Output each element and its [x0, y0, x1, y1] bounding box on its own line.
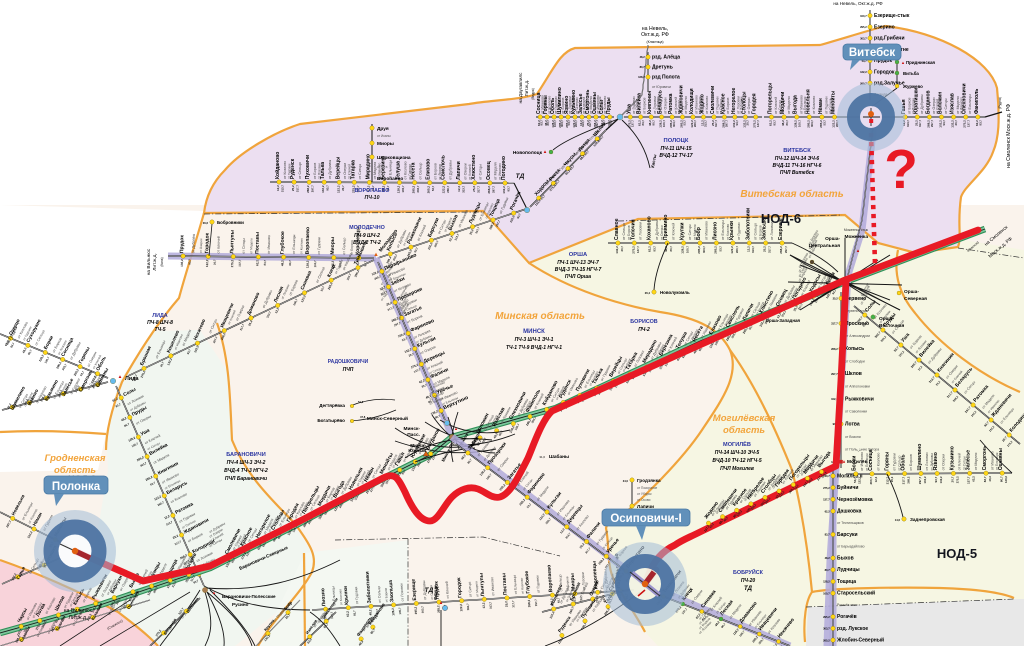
- svg-text:ПЧ-14 ШЧ-10 ЭЧ-5: ПЧ-14 ШЧ-10 ЭЧ-5: [715, 450, 760, 456]
- svg-text:268,2: 268,2: [527, 599, 532, 607]
- svg-text:от Озерки: от Озерки: [663, 97, 667, 114]
- svg-text:от Озерки: от Озерки: [464, 163, 468, 180]
- svg-text:Свислочь: Свислочь: [441, 155, 447, 180]
- svg-text:Могилёвская: Могилёвская: [713, 413, 776, 424]
- svg-text:область: область: [723, 425, 765, 436]
- svg-text:128,2: 128,2: [823, 580, 830, 584]
- svg-text:25,2: 25,2: [472, 186, 476, 192]
- svg-text:от Ключей: от Ключей: [958, 453, 962, 470]
- svg-text:ТЧ-1 ТЧ-9 ВЧД-1 НГЧ-1: ТЧ-1 ТЧ-9 ВЧД-1 НГЧ-1: [506, 345, 562, 351]
- svg-text:317,7: 317,7: [918, 120, 922, 127]
- svg-text:100,7: 100,7: [823, 591, 830, 595]
- svg-text:Новополоцк: Новополоцк: [513, 150, 543, 156]
- svg-text:Городок: Городок: [874, 69, 895, 75]
- svg-text:100,7: 100,7: [398, 607, 403, 615]
- svg-text:Новолукомль: Новолукомль: [660, 290, 690, 295]
- svg-text:от Александрии: от Александрии: [845, 334, 870, 338]
- svg-text:Талька: Талька: [320, 162, 326, 179]
- svg-text:80,7: 80,7: [640, 65, 646, 69]
- svg-text:62,2: 62,2: [255, 260, 259, 266]
- svg-text:265,2: 265,2: [427, 186, 431, 194]
- svg-text:12,2: 12,2: [481, 602, 485, 608]
- svg-text:295,2: 295,2: [697, 246, 701, 254]
- svg-text:Миоры: Миоры: [377, 141, 394, 147]
- svg-text:Дашковка: Дашковка: [837, 509, 862, 515]
- svg-text:Быхов: Быхов: [837, 556, 854, 562]
- svg-text:Тощица: Тощица: [837, 579, 856, 585]
- svg-text:26,4: 26,4: [645, 291, 651, 295]
- svg-text:МОГИЛЁВ: МОГИЛЁВ: [723, 441, 751, 448]
- svg-text:от Козлово: от Козлово: [403, 161, 407, 179]
- svg-text:303,7: 303,7: [560, 120, 564, 127]
- svg-text:137,7: 137,7: [756, 120, 760, 127]
- svg-text:НОД-5: НОД-5: [937, 546, 977, 561]
- svg-text:ПЧ-9 ШЧ-2: ПЧ-9 ШЧ-2: [354, 233, 380, 239]
- svg-text:Крынки: Крынки: [729, 221, 735, 240]
- svg-text:53,7: 53,7: [567, 120, 571, 126]
- svg-text:Шумилино: Шумилино: [917, 444, 923, 471]
- svg-text:20,7: 20,7: [954, 120, 958, 126]
- svg-text:303,7: 303,7: [860, 36, 867, 40]
- svg-text:128,2: 128,2: [681, 246, 685, 254]
- svg-text:102,2: 102,2: [321, 185, 325, 193]
- svg-text:83,7: 83,7: [983, 476, 987, 482]
- svg-text:от Ключей: от Ключей: [217, 236, 221, 253]
- svg-text:Погодино: Погодино: [501, 156, 507, 180]
- svg-text:Заднепровская: Заднепровская: [910, 517, 945, 522]
- svg-text:Минская область: Минская область: [495, 310, 585, 322]
- svg-text:83,7: 83,7: [653, 246, 657, 252]
- svg-text:от Гута: от Гута: [377, 165, 388, 169]
- svg-text:Прудок: Прудок: [179, 235, 185, 254]
- svg-text:Приднинская: Приднинская: [906, 60, 935, 65]
- svg-text:Верейцы: Верейцы: [334, 157, 341, 180]
- svg-text:Выгода: Выгода: [793, 95, 799, 114]
- svg-text:93,7: 93,7: [942, 120, 946, 126]
- svg-text:Лит.ж.д.: Лит.ж.д.: [69, 615, 88, 621]
- svg-text:Приямино: Приямино: [663, 215, 669, 241]
- svg-text:295,2: 295,2: [860, 25, 867, 29]
- svg-text:25,2: 25,2: [763, 246, 767, 252]
- svg-text:Центральная: Центральная: [809, 243, 841, 249]
- svg-text:ПЧ-1 ШЧ-13 ЭЧ-7: ПЧ-1 ШЧ-13 ЭЧ-7: [557, 260, 599, 266]
- svg-text:12,2: 12,2: [746, 246, 750, 252]
- svg-text:ТЧ-5: ТЧ-5: [154, 327, 165, 333]
- svg-text:Северная: Северная: [904, 296, 927, 302]
- svg-text:Богатырёво: Богатырёво: [317, 418, 345, 423]
- svg-text:297,7: 297,7: [930, 120, 934, 127]
- svg-text:НОД-6: НОД-6: [761, 211, 801, 226]
- svg-text:260,7: 260,7: [869, 477, 873, 485]
- svg-text:(Кяна): (Кяна): [160, 257, 164, 266]
- svg-text:ПЧП: ПЧП: [343, 367, 354, 373]
- svg-text:303,7: 303,7: [672, 120, 676, 127]
- svg-text:Изяслав: Изяслав: [950, 93, 956, 114]
- svg-text:265,2: 265,2: [823, 638, 830, 642]
- svg-text:Жлобин-Северный: Жлобин-Северный: [836, 637, 884, 644]
- svg-text:ПЧ-8 ШЧ-8: ПЧ-8 ШЧ-8: [147, 320, 173, 326]
- svg-text:МИНСК: МИНСК: [523, 329, 545, 335]
- svg-text:12,2: 12,2: [874, 476, 878, 482]
- svg-text:Борки: Борки: [852, 456, 858, 471]
- svg-text:от Ключей: от Ключей: [672, 223, 676, 240]
- svg-text:80,7: 80,7: [288, 260, 292, 266]
- svg-text:268,2: 268,2: [779, 246, 783, 254]
- svg-text:Слуцк: Слуцк: [433, 585, 439, 600]
- svg-text:Пуховичи: Пуховичи: [305, 155, 311, 179]
- svg-text:100,7: 100,7: [662, 120, 666, 127]
- svg-text:Пруды: Пруды: [606, 97, 612, 114]
- svg-text:Шабаны: Шабаны: [549, 453, 569, 460]
- svg-text:20,7: 20,7: [745, 120, 749, 126]
- svg-text:от Гудовки: от Гудовки: [893, 453, 897, 471]
- svg-text:260,7: 260,7: [574, 120, 578, 127]
- svg-text:297,7: 297,7: [784, 246, 788, 253]
- svg-text:от Ельницы: от Ельницы: [292, 234, 296, 254]
- svg-text:ПЧ-4 ШЧ-3 ЭЧ-2: ПЧ-4 ШЧ-3 ЭЧ-2: [227, 460, 266, 466]
- svg-text:Поставы: Поставы: [255, 232, 261, 254]
- svg-text:Полонка: Полонка: [52, 481, 101, 493]
- svg-text:128,2: 128,2: [306, 260, 310, 268]
- svg-text:100,7: 100,7: [860, 14, 867, 18]
- svg-text:от Иваново: от Иваново: [267, 235, 271, 254]
- svg-text:от Юровичи: от Юровичи: [652, 85, 671, 89]
- svg-text:на Вильнюс: на Вильнюс: [146, 248, 152, 275]
- svg-text:от Визони: от Визони: [845, 435, 861, 439]
- svg-text:от Польشние Хутора: от Польشние Хутора: [845, 447, 879, 451]
- svg-text:83,7: 83,7: [978, 120, 982, 126]
- svg-text:80,7: 80,7: [785, 120, 789, 126]
- svg-text:137,7: 137,7: [630, 120, 634, 127]
- svg-text:ТД: ТД: [744, 586, 753, 592]
- svg-text:80,7: 80,7: [825, 568, 831, 572]
- svg-text:102,2: 102,2: [180, 259, 184, 267]
- svg-text:268,2: 268,2: [487, 186, 491, 194]
- svg-text:295,2: 295,2: [412, 185, 416, 193]
- svg-text:48,2: 48,2: [988, 476, 992, 482]
- svg-text:Южный: Южный: [408, 447, 426, 453]
- svg-text:от Лозовки: от Лозовки: [639, 222, 643, 240]
- svg-text:Фаниполь: Фаниполь: [974, 89, 980, 114]
- svg-text:93,7: 93,7: [735, 120, 739, 126]
- svg-text:от Лозовки: от Лозовки: [925, 453, 929, 471]
- svg-text:на Невель, Окт.ж.д. РФ: на Невель, Окт.ж.д. РФ: [833, 1, 883, 6]
- svg-text:317,7: 317,7: [831, 322, 838, 326]
- svg-text:Барановичи-Полесские: Барановичи-Полесские: [222, 594, 276, 599]
- svg-text:от Гудовки: от Гудовки: [737, 222, 741, 240]
- svg-text:ПЧЛ Могилев: ПЧЛ Могилев: [720, 466, 754, 472]
- svg-text:Новельня: Новельня: [805, 89, 811, 114]
- svg-text:137,7: 137,7: [967, 476, 971, 484]
- svg-text:297,7: 297,7: [534, 599, 539, 607]
- svg-text:Лудчицы: Лудчицы: [837, 567, 860, 573]
- svg-text:100,7: 100,7: [553, 120, 557, 127]
- svg-text:268,2: 268,2: [831, 347, 838, 351]
- svg-text:Можеенка: Можеенка: [844, 234, 868, 240]
- svg-text:Богданов: Богданов: [925, 90, 931, 114]
- svg-text:ТД: ТД: [516, 173, 525, 180]
- svg-text:36,6: 36,6: [203, 221, 209, 225]
- svg-text:от Гудовки: от Гудовки: [317, 237, 321, 255]
- svg-text:93,7: 93,7: [188, 259, 192, 265]
- svg-text:268,2: 268,2: [306, 185, 310, 193]
- svg-text:ПЧ-20: ПЧ-20: [741, 578, 756, 584]
- svg-text:от Иваново: от Иваново: [860, 452, 864, 471]
- svg-text:313,7: 313,7: [461, 185, 465, 192]
- svg-text:ПЧ-12 ШЧ-14 ЭЧ-6: ПЧ-12 ШЧ-14 ЭЧ-6: [775, 156, 820, 162]
- svg-text:Хлюстино: Хлюстино: [471, 155, 477, 180]
- svg-text:100,7: 100,7: [686, 246, 690, 253]
- svg-text:Погорельцы: Погорельцы: [768, 83, 774, 114]
- svg-text:от Тектильщиков: от Тектильщиков: [837, 521, 864, 525]
- svg-text:Воропаево: Воропаево: [377, 176, 403, 182]
- svg-text:Воложин: Воложин: [938, 92, 944, 114]
- svg-text:Руденск: Руденск: [290, 158, 296, 179]
- svg-text:100,7: 100,7: [401, 185, 405, 192]
- svg-text:53,7: 53,7: [431, 185, 435, 191]
- svg-text:Горяны: Горяны: [884, 452, 890, 471]
- svg-text:80,7: 80,7: [999, 476, 1003, 482]
- svg-text:Крупки: Крупки: [680, 223, 686, 240]
- svg-text:Сосница: Сосница: [868, 449, 874, 471]
- svg-text:297,7: 297,7: [831, 372, 838, 376]
- svg-text:47,8: 47,8: [360, 415, 366, 419]
- svg-text:Лапичи: Лапичи: [456, 161, 462, 179]
- svg-text:297,7: 297,7: [491, 185, 495, 192]
- svg-text:137,7: 137,7: [823, 498, 830, 502]
- svg-text:62,2: 62,2: [825, 509, 831, 513]
- svg-text:БОРИСОВ: БОРИСОВ: [630, 319, 657, 325]
- svg-text:ВЧД-12 ТЧ-17: ВЧД-12 ТЧ-17: [659, 153, 692, 159]
- svg-text:(Вндра): (Вндра): [531, 88, 535, 99]
- svg-text:303,7: 303,7: [810, 120, 814, 127]
- svg-text:93,7: 93,7: [934, 476, 938, 482]
- svg-text:?: ?: [884, 138, 918, 200]
- svg-text:ПЧЛ Витебск: ПЧЛ Витебск: [780, 169, 815, 176]
- svg-text:от Ельницы: от Ельницы: [721, 220, 725, 240]
- svg-text:83,7: 83,7: [772, 120, 776, 126]
- svg-text:313,7: 313,7: [704, 120, 708, 127]
- svg-text:122,2: 122,2: [860, 70, 867, 74]
- svg-text:137,7: 137,7: [636, 246, 640, 253]
- svg-text:132,2: 132,2: [939, 476, 943, 483]
- svg-text:от Ельницы: от Ельницы: [968, 94, 972, 114]
- svg-text:ПЧ-3 ШЧ-1 ЭЧ-1: ПЧ-3 ШЧ-1 ЭЧ-1: [515, 337, 554, 343]
- svg-text:20,7: 20,7: [950, 476, 954, 482]
- svg-text:20,7: 20,7: [620, 246, 624, 252]
- svg-text:от Борков: от Борков: [909, 454, 913, 471]
- svg-text:317,7: 317,7: [902, 476, 906, 484]
- svg-text:Гродненская: Гродненская: [45, 453, 106, 464]
- svg-text:Орша-: Орша-: [879, 316, 894, 322]
- svg-text:ПОЛОЦК: ПОЛОЦК: [664, 138, 689, 144]
- svg-text:от Борков: от Борков: [313, 163, 317, 180]
- svg-text:Езерино: Езерино: [874, 24, 895, 30]
- svg-text:Лынтупы: Лынтупы: [229, 230, 235, 254]
- svg-text:313,7: 313,7: [488, 601, 493, 609]
- svg-text:Рогачёв: Рогачёв: [837, 614, 857, 620]
- svg-text:Рогачёв стык: Рогачёв стык: [837, 603, 858, 607]
- svg-text:Шарковщизна: Шарковщизна: [377, 155, 411, 161]
- svg-text:от Сельцо: от Сельцо: [298, 162, 302, 179]
- svg-text:Залесье: Залесье: [966, 450, 972, 471]
- svg-text:от Барыздайлово: от Барыздайлово: [837, 545, 865, 549]
- svg-text:от Козлово: от Козлово: [876, 453, 880, 471]
- svg-text:132,2: 132,2: [336, 185, 340, 193]
- svg-text:303,7: 303,7: [420, 606, 425, 614]
- svg-text:ПЧЛ Барановичи: ПЧЛ Барановичи: [225, 476, 267, 482]
- svg-text:128,2: 128,2: [397, 185, 401, 193]
- svg-text:Русино: Русино: [232, 602, 249, 607]
- svg-text:(Клястица): (Клястица): [646, 40, 663, 44]
- svg-text:ПЧ-11 ШЧ-15: ПЧ-11 ШЧ-15: [660, 146, 691, 152]
- svg-text:Лиозно: Лиозно: [712, 222, 718, 240]
- svg-text:Витьба: Витьба: [903, 71, 919, 76]
- svg-text:от Мяделя: от Мяделя: [974, 453, 978, 471]
- svg-text:от Озерки: от Озерки: [343, 163, 347, 180]
- svg-text:Городея: Городея: [752, 93, 758, 114]
- svg-text:62,2: 62,2: [972, 476, 976, 482]
- svg-text:ВЧД-4 ТЧ-3 НГЧ-2: ВЧД-4 ТЧ-3 НГЧ-2: [224, 468, 268, 474]
- svg-text:12,2: 12,2: [276, 185, 280, 191]
- svg-text:(Рудня): (Рудня): [998, 97, 1002, 109]
- svg-text:от Дубравы: от Дубравы: [328, 159, 332, 179]
- svg-text:53,7: 53,7: [718, 246, 722, 252]
- svg-text:295,2: 295,2: [413, 606, 418, 614]
- svg-text:53,7: 53,7: [823, 120, 827, 126]
- svg-text:ОРША: ОРША: [569, 252, 588, 258]
- svg-text:100,7: 100,7: [798, 120, 802, 127]
- svg-text:от Козлово: от Козлово: [299, 238, 303, 254]
- svg-text:260,7: 260,7: [735, 246, 739, 253]
- svg-text:317,7: 317,7: [296, 185, 300, 192]
- svg-text:297,7: 297,7: [311, 185, 315, 192]
- svg-text:Друя: Друя: [377, 126, 389, 132]
- svg-text:Минск-Северный: Минск-Северный: [367, 415, 408, 422]
- svg-text:313,7: 313,7: [751, 246, 755, 253]
- svg-text:317,7: 317,7: [768, 246, 772, 253]
- svg-text:Орша-: Орша-: [904, 289, 919, 295]
- svg-text:Бобровники: Бобровники: [217, 220, 244, 225]
- svg-text:от Саволюнки: от Саволюнки: [845, 410, 867, 414]
- svg-text:25,2: 25,2: [291, 185, 295, 191]
- svg-text:от Озерки: от Озерки: [941, 454, 945, 471]
- svg-text:48,2: 48,2: [280, 260, 284, 266]
- svg-text:317,7: 317,7: [511, 600, 516, 608]
- svg-text:Бобр: Бобр: [695, 227, 702, 240]
- svg-text:от Мяделя: от Мяделя: [249, 238, 253, 254]
- svg-text:от Мяделя: от Мяделя: [494, 162, 498, 180]
- svg-text:268,2: 268,2: [907, 476, 911, 483]
- svg-text:Дегтярёвка: Дегтярёвка: [319, 403, 345, 408]
- svg-text:80,7: 80,7: [546, 120, 550, 126]
- svg-text:от Ситцы: от Ситцы: [479, 164, 483, 180]
- svg-text:от Сельцо: от Сельцо: [418, 163, 422, 180]
- svg-text:от Борков: от Борков: [726, 97, 730, 114]
- svg-text:Журжево: Журжево: [902, 84, 923, 89]
- svg-text:93,7: 93,7: [326, 185, 330, 191]
- svg-text:Минск-: Минск-: [403, 426, 420, 432]
- svg-text:122,2: 122,2: [442, 186, 446, 194]
- svg-text:Лиозно: Лиозно: [320, 588, 327, 607]
- svg-text:Несета: Несета: [411, 162, 417, 179]
- svg-text:14,6: 14,6: [895, 518, 901, 522]
- svg-text:от Уборок: от Уборок: [637, 492, 652, 496]
- svg-text:ТД: ТД: [425, 587, 434, 594]
- svg-text:48,2: 48,2: [368, 609, 372, 615]
- svg-text:122,2: 122,2: [459, 604, 464, 612]
- svg-text:Минойты: Минойты: [830, 91, 837, 114]
- svg-text:ВОРОПАЕВО: ВОРОПАЕВО: [355, 188, 390, 194]
- svg-text:Татарка: Татарка: [350, 160, 356, 179]
- svg-text:от Осови: от Осови: [637, 498, 651, 502]
- svg-text:от Слободки: от Слободки: [845, 359, 865, 363]
- svg-text:на Даугавпилс: на Даугавпилс: [518, 72, 523, 104]
- svg-text:303,7: 303,7: [702, 246, 706, 253]
- svg-text:313,7: 313,7: [581, 120, 585, 127]
- svg-text:Пасс.: Пасс.: [407, 432, 420, 438]
- svg-text:ВЧД-10 ТЧ-12 НГЧ-5: ВЧД-10 ТЧ-12 НГЧ-5: [712, 458, 761, 464]
- svg-text:ЛИДА: ЛИДА: [152, 313, 167, 319]
- svg-text:102,2: 102,2: [502, 186, 506, 194]
- svg-text:83,7: 83,7: [263, 260, 267, 266]
- svg-text:83,7: 83,7: [539, 120, 543, 126]
- svg-text:от Мяделя: от Мяделя: [787, 96, 791, 114]
- svg-text:от Козлово: от Козлово: [283, 161, 287, 179]
- svg-text:Осиповичи-I: Осиповичи-I: [610, 513, 681, 525]
- svg-text:Славное: Славное: [614, 218, 620, 240]
- svg-text:ВЧД-11 ТЧ-16 НГЧ-6: ВЧД-11 ТЧ-16 НГЧ-6: [773, 163, 822, 169]
- svg-text:Койданово: Койданово: [274, 152, 281, 179]
- svg-text:от Ситцы: от Ситцы: [688, 224, 692, 240]
- svg-text:Кузьмино: Кузьмино: [949, 446, 955, 470]
- svg-text:297,7: 297,7: [725, 120, 729, 127]
- svg-text:рзд. Лукское: рзд. Лукское: [837, 626, 868, 632]
- svg-text:303,7: 303,7: [823, 627, 830, 631]
- svg-text:80,7: 80,7: [669, 246, 673, 252]
- svg-text:122,2: 122,2: [858, 476, 862, 483]
- svg-text:93,7: 93,7: [507, 186, 511, 192]
- svg-text:317,7: 317,7: [476, 185, 480, 192]
- svg-text:от Дубравы: от Дубравы: [655, 220, 659, 240]
- svg-text:53,7: 53,7: [853, 477, 857, 483]
- svg-text:ПЧ-10: ПЧ-10: [365, 195, 380, 201]
- svg-text:48,2: 48,2: [825, 556, 831, 560]
- svg-text:Оболь: Оболь: [900, 454, 907, 470]
- svg-text:102,2: 102,2: [923, 476, 927, 483]
- svg-text:Елизово: Елизово: [426, 159, 432, 180]
- svg-text:Мордичи: Мордичи: [780, 92, 786, 114]
- svg-text:122,2: 122,2: [730, 246, 734, 254]
- svg-text:275,2: 275,2: [631, 246, 635, 254]
- svg-text:Чернозёмовка: Чернозёмовка: [837, 497, 873, 503]
- svg-text:31,6: 31,6: [539, 455, 545, 459]
- svg-text:128,2: 128,2: [1004, 476, 1008, 483]
- svg-text:313,7: 313,7: [906, 120, 910, 127]
- svg-text:на Смоленск Моск.ж.д. РФ: на Смоленск Моск.ж.д. РФ: [1006, 104, 1012, 168]
- svg-text:275,2: 275,2: [230, 259, 234, 267]
- svg-text:313,7: 313,7: [281, 185, 285, 192]
- svg-text:Язвино: Язвино: [933, 452, 939, 470]
- svg-text:297,7: 297,7: [918, 476, 922, 484]
- svg-text:от Сельцо: от Сельцо: [754, 223, 758, 240]
- svg-text:Осовец: Осовец: [486, 160, 492, 180]
- svg-text:от Борков: от Борков: [642, 97, 646, 114]
- svg-text:100,7: 100,7: [313, 260, 317, 268]
- svg-text:Заболотники: Заболотники: [744, 208, 751, 240]
- svg-text:260,7: 260,7: [466, 603, 471, 611]
- svg-text:ВЧД-3 ТЧ-15 НГЧ-7: ВЧД-3 ТЧ-15 НГЧ-7: [555, 267, 602, 273]
